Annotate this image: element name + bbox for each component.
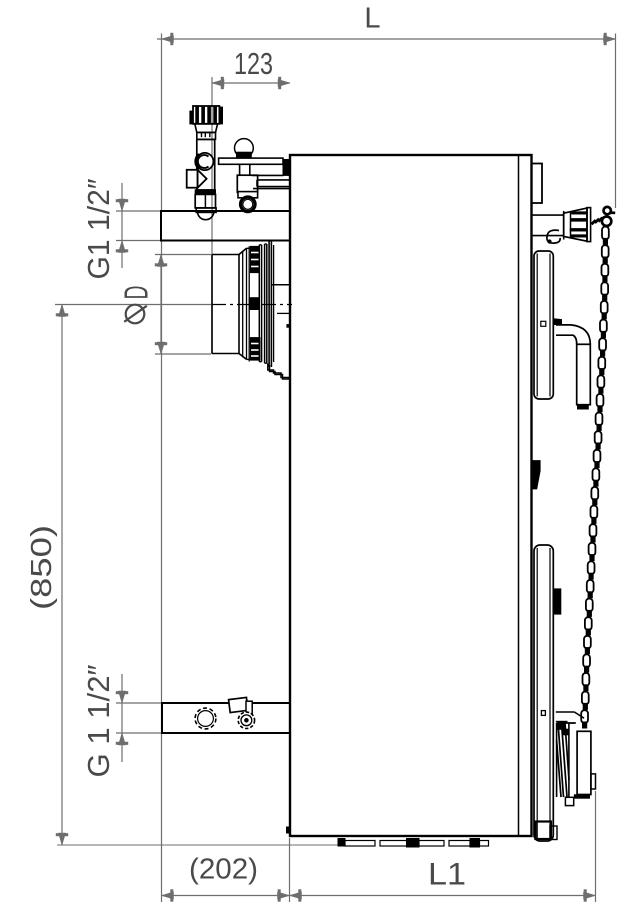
svg-text:(850): (850) [26,525,58,610]
svg-text:123: 123 [234,46,273,81]
svg-text:L: L [364,3,380,35]
svg-text:(202): (202) [189,854,258,886]
svg-text:G 1 1/2″: G 1 1/2″ [81,664,116,777]
svg-text:D: D [118,286,155,300]
svg-text:G1 1/2″: G1 1/2″ [81,178,116,279]
svg-text:L1: L1 [428,856,466,892]
